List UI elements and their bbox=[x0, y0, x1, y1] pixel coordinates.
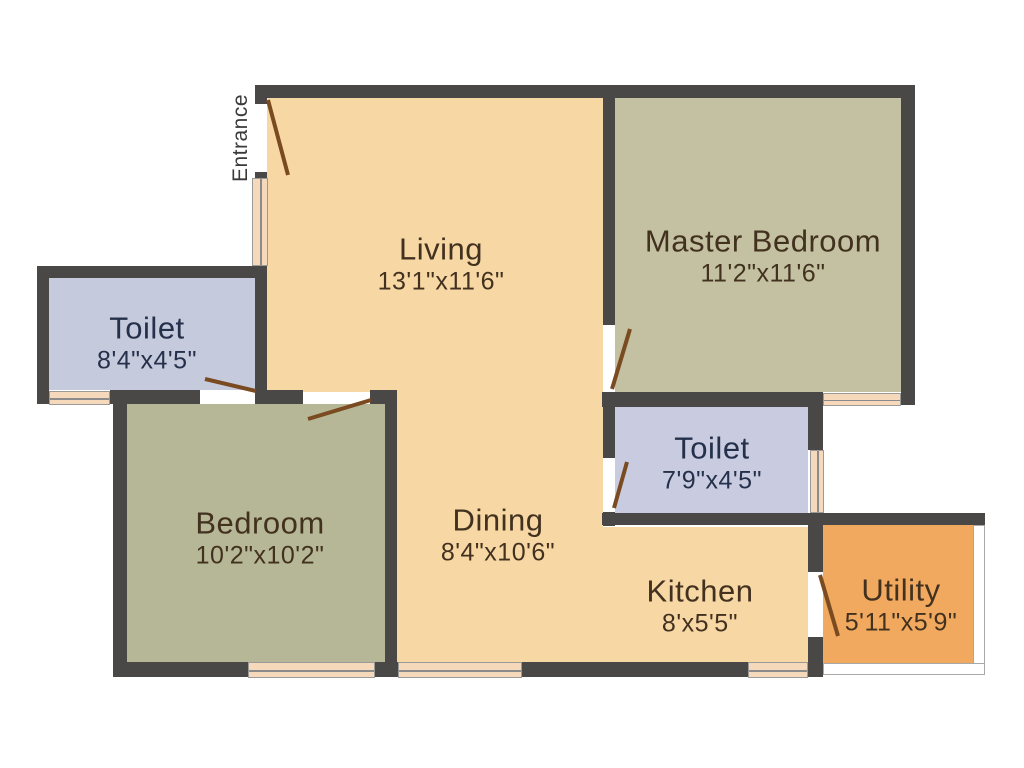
room-dims: 8'4"x4'5" bbox=[97, 346, 197, 374]
wall bbox=[808, 525, 823, 572]
wall bbox=[602, 513, 985, 525]
wall bbox=[255, 98, 267, 104]
room-dims: 7'9"x4'5" bbox=[662, 466, 762, 494]
floor-plan: Entrance Living 13'1"x11'6" Master Bedro… bbox=[0, 0, 1024, 768]
room-name: Toilet bbox=[97, 312, 197, 347]
window bbox=[823, 393, 901, 406]
wall bbox=[808, 392, 823, 450]
room-label-master-bedroom: Master Bedroom 11'2"x11'6" bbox=[645, 225, 881, 288]
wall bbox=[603, 85, 615, 325]
room-label-utility: Utility 5'11"x5'9" bbox=[845, 574, 957, 637]
wall bbox=[37, 266, 49, 390]
room-name: Bedroom bbox=[195, 507, 324, 542]
wall bbox=[37, 266, 267, 278]
room-dims: 8'4"x10'6" bbox=[441, 538, 555, 566]
window bbox=[398, 662, 522, 678]
room-name: Toilet bbox=[662, 432, 762, 467]
window bbox=[748, 662, 808, 678]
room-label-toilet-right: Toilet 7'9"x4'5" bbox=[662, 432, 762, 495]
wall bbox=[901, 85, 915, 405]
room-name: Kitchen bbox=[647, 575, 754, 610]
wall bbox=[255, 390, 303, 404]
wall bbox=[375, 662, 398, 677]
wall bbox=[127, 662, 248, 677]
wall bbox=[37, 390, 49, 404]
room-name: Dining bbox=[441, 504, 555, 539]
room-label-bedroom: Bedroom 10'2"x10'2" bbox=[195, 507, 324, 570]
room-name: Living bbox=[378, 233, 505, 268]
room-label-toilet-left: Toilet 8'4"x4'5" bbox=[97, 312, 197, 375]
room-dims: 8'x5'5" bbox=[647, 609, 754, 637]
wall bbox=[255, 266, 267, 404]
entrance-label: Entrance bbox=[229, 94, 253, 182]
room-dims: 5'11"x5'9" bbox=[845, 608, 957, 636]
wall bbox=[522, 662, 748, 677]
window bbox=[252, 178, 268, 266]
utility-open-window bbox=[973, 525, 985, 675]
room-dims: 10'2"x10'2" bbox=[195, 541, 324, 569]
room-dims: 13'1"x11'6" bbox=[378, 267, 505, 295]
room-name: Utility bbox=[845, 574, 957, 609]
wall bbox=[113, 390, 127, 677]
window bbox=[248, 662, 375, 678]
window bbox=[810, 450, 824, 513]
room-label-living: Living 13'1"x11'6" bbox=[378, 233, 505, 296]
room-label-kitchen: Kitchen 8'x5'5" bbox=[647, 575, 754, 638]
utility-open-window bbox=[823, 663, 985, 675]
window bbox=[49, 391, 110, 405]
wall bbox=[255, 85, 915, 98]
room-name: Master Bedroom bbox=[645, 225, 881, 260]
room-label-dining: Dining 8'4"x10'6" bbox=[441, 504, 555, 567]
wall bbox=[602, 392, 823, 407]
room-dims: 11'2"x11'6" bbox=[645, 259, 881, 287]
wall bbox=[808, 637, 823, 677]
wall bbox=[603, 392, 615, 458]
wall bbox=[385, 390, 397, 677]
